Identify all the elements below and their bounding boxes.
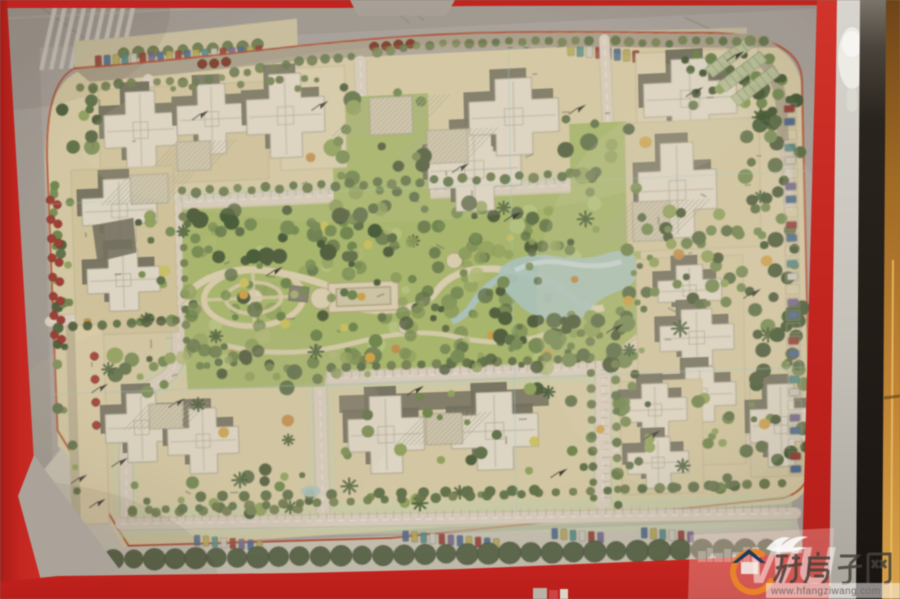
svg-text:www.hfangziwang.com: www.hfangziwang.com (770, 586, 880, 597)
